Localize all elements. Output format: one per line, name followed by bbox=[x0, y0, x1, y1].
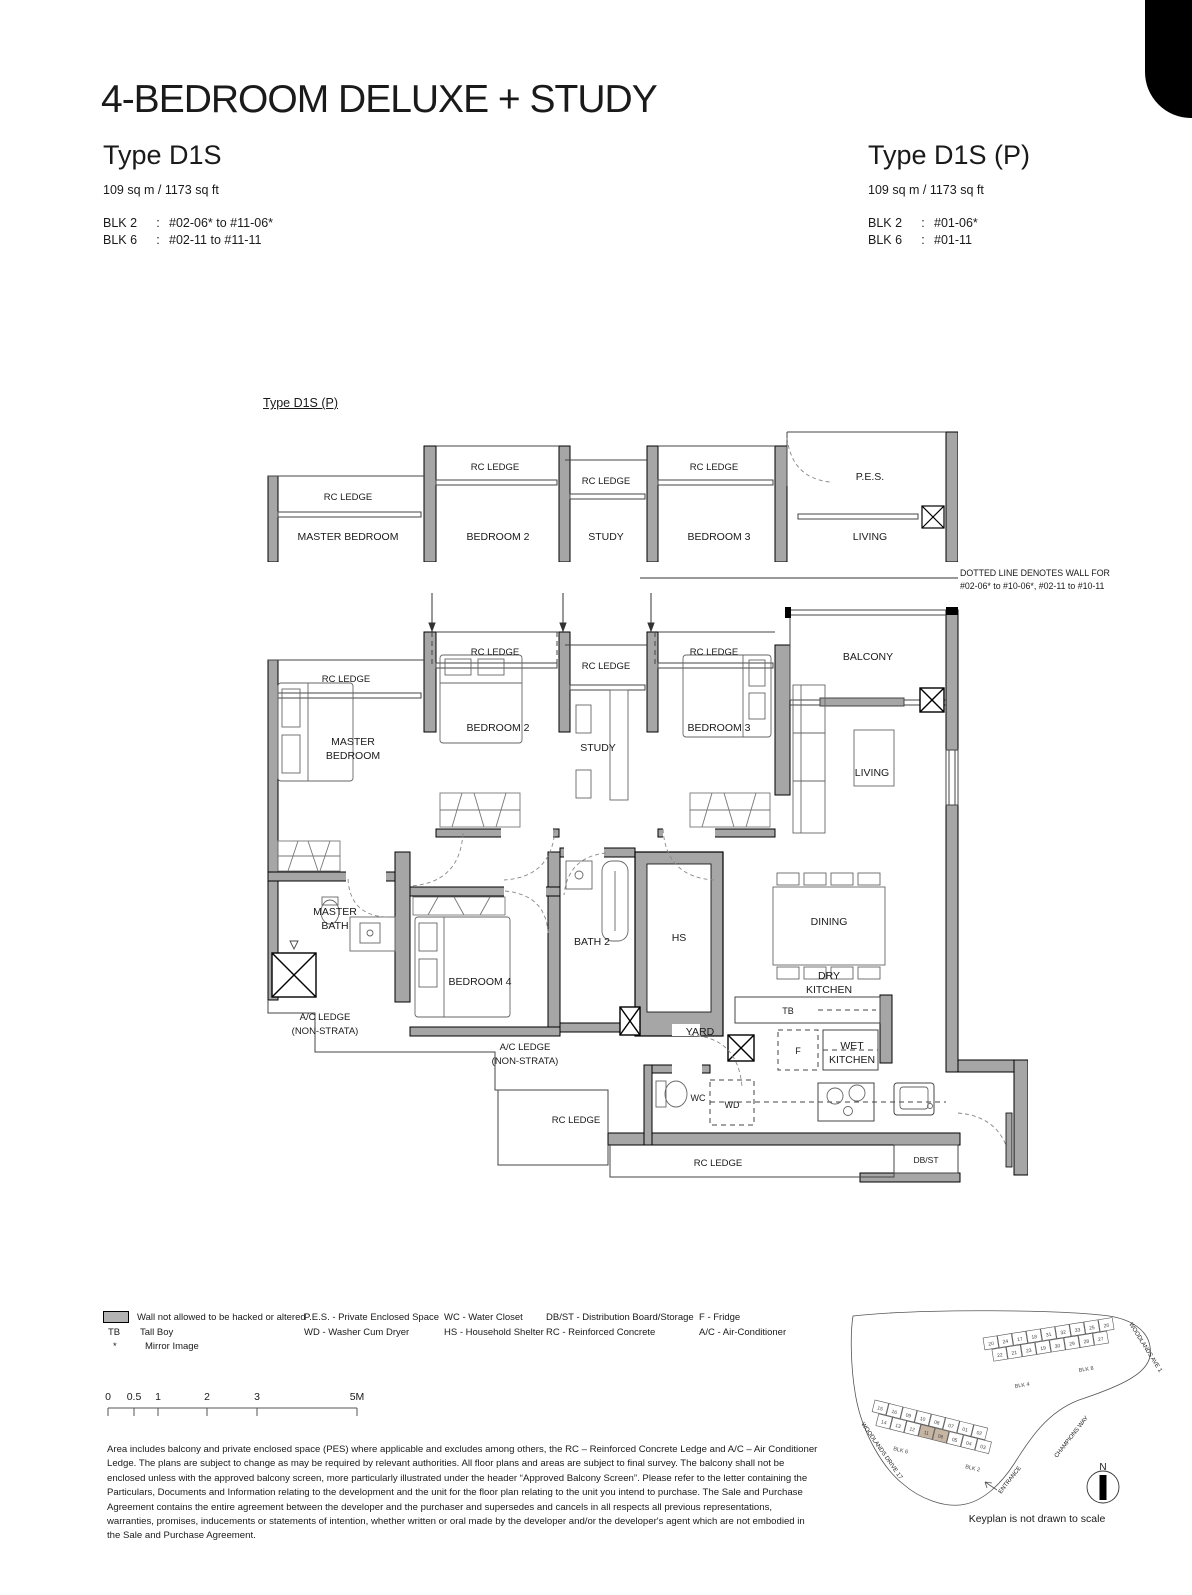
ac-ledge-label: (NON-STRATA) bbox=[492, 1056, 559, 1067]
legend-text: WD - Washer Cum Dryer bbox=[304, 1326, 439, 1341]
floorplan-page: 4-BEDROOM DELUXE + STUDY Type D1S 109 sq… bbox=[0, 0, 1192, 1595]
rc-ledge-label: RC LEDGE bbox=[694, 1158, 743, 1169]
disclaimer-text: Area includes balcony and private enclos… bbox=[107, 1443, 819, 1544]
master-bedroom-label: BEDROOM bbox=[326, 750, 380, 762]
legend-text: Wall not allowed to be hacked or altered bbox=[137, 1312, 306, 1323]
legend-wall-row: Wall not allowed to be hacked or altered bbox=[103, 1311, 306, 1326]
bedroom2-label: BEDROOM 2 bbox=[466, 531, 529, 543]
wet-kitchen-label: WET bbox=[840, 1040, 864, 1052]
keyplan-block-label: BLK 4 bbox=[1014, 1382, 1030, 1390]
hob-icon bbox=[827, 1085, 865, 1116]
keyplan-unit-number: 23 bbox=[1026, 1348, 1033, 1355]
scale-tick-label: 1 bbox=[155, 1391, 161, 1403]
unit-type-header-right: Type D1S (P) 109 sq m / 1173 sq ft BLK 2… bbox=[868, 140, 1030, 249]
scale-tick-label: 5M bbox=[350, 1391, 365, 1403]
keyplan-unit-number: 30 bbox=[1054, 1343, 1061, 1350]
keyplan-unit-number: 26 bbox=[1103, 1323, 1110, 1330]
hs-label: HS bbox=[672, 932, 687, 944]
rc-ledge-label: RC LEDGE bbox=[324, 492, 373, 503]
page-corner-tab bbox=[1145, 0, 1192, 118]
scale-bar: 0 0.5 1 2 3 5M bbox=[103, 1388, 373, 1420]
keyplan-unit-number: 31 bbox=[1046, 1332, 1053, 1339]
living-label: LIVING bbox=[853, 531, 887, 543]
legend-text: Tall Boy bbox=[140, 1327, 173, 1338]
dining-label: DINING bbox=[811, 916, 848, 928]
entrance-arrow-icon bbox=[985, 1482, 997, 1490]
legend-text: WC - Water Closet bbox=[444, 1311, 544, 1326]
block-label: BLK 2 bbox=[868, 215, 912, 232]
dry-kitchen-label: KITCHEN bbox=[806, 984, 852, 996]
block-units-line: BLK 6 : #01-11 bbox=[868, 232, 1030, 249]
bedroom3-label: BEDROOM 3 bbox=[687, 531, 750, 543]
north-arrow-icon: N bbox=[1087, 1462, 1119, 1503]
bedroom4-label: BEDROOM 4 bbox=[448, 976, 511, 988]
bedroom3-label: BEDROOM 3 bbox=[687, 722, 750, 734]
dry-kitchen-label: DRY bbox=[818, 970, 840, 982]
rc-ledge-label: RC LEDGE bbox=[690, 647, 739, 658]
yard-label: YARD bbox=[686, 1026, 715, 1038]
household-shelter-walls bbox=[635, 852, 723, 1036]
legend-text: DB/ST - Distribution Board/Storage bbox=[546, 1311, 694, 1326]
block-units: #01-06* bbox=[934, 215, 978, 232]
rc-ledge-label: RC LEDGE bbox=[322, 674, 371, 685]
unit-type-name: Type D1S (P) bbox=[868, 140, 1030, 171]
wardrobe-icon bbox=[440, 793, 520, 827]
keyplan-unit-number: 27 bbox=[1098, 1336, 1105, 1343]
wardrobe-icon bbox=[278, 841, 340, 871]
legend-text: F - Fridge bbox=[699, 1311, 786, 1326]
colon: : bbox=[912, 215, 934, 232]
wc-label: WC bbox=[691, 1093, 706, 1103]
rc-ledge-label: RC LEDGE bbox=[582, 661, 631, 672]
main-floor-plan: RC LEDGE RC LEDGE RC LEDGE RC LEDGE BALC… bbox=[258, 565, 1028, 1183]
rc-ledge-label: RC LEDGE bbox=[552, 1115, 601, 1126]
rc-ledge-label: RC LEDGE bbox=[471, 647, 520, 658]
colon: : bbox=[147, 215, 169, 232]
keyplan: 2024171831323325262221231930292827151609… bbox=[833, 1272, 1192, 1534]
keyplan-caption: Keyplan is not drawn to scale bbox=[969, 1513, 1106, 1525]
ac-ledge-box-icon bbox=[922, 506, 944, 528]
partial-plan-label: Type D1S (P) bbox=[263, 396, 338, 410]
block-units-line: BLK 6 : #02-11 to #11-11 bbox=[103, 232, 273, 249]
legend-text: RC - Reinforced Concrete bbox=[546, 1326, 694, 1341]
unit-type-name: Type D1S bbox=[103, 140, 273, 171]
living-label: LIVING bbox=[855, 767, 889, 779]
unit-type-header-left: Type D1S 109 sq m / 1173 sq ft BLK 2 : #… bbox=[103, 140, 273, 249]
keyplan-unit-number: 33 bbox=[1074, 1327, 1081, 1334]
keyplan-unit-number: 19 bbox=[1040, 1345, 1047, 1352]
wall-end-caps bbox=[785, 607, 958, 618]
tb-label: TB bbox=[782, 1006, 794, 1016]
unit-area: 109 sq m / 1173 sq ft bbox=[868, 183, 1030, 197]
ac-ledge-label: A/C LEDGE bbox=[300, 1012, 351, 1023]
keyplan-unit-number: 28 bbox=[1083, 1339, 1090, 1346]
scale-tick-label: 0 bbox=[105, 1391, 111, 1403]
wardrobe-icon bbox=[690, 793, 770, 827]
ledges-and-windows bbox=[268, 610, 958, 1177]
balcony-label: BALCONY bbox=[843, 651, 893, 663]
wd-label: WD bbox=[725, 1100, 740, 1110]
keyplan-block-label: BLK 6 bbox=[893, 1446, 909, 1455]
colon: : bbox=[147, 232, 169, 249]
legend-tb-row: TBTall Boy bbox=[103, 1326, 306, 1341]
block-units: #02-11 to #11-11 bbox=[169, 232, 261, 249]
rc-ledge-label: RC LEDGE bbox=[471, 462, 520, 473]
bath2-label: BATH 2 bbox=[574, 936, 610, 948]
entrance-door-leaf bbox=[1006, 1113, 1012, 1167]
sofa-icon bbox=[793, 685, 825, 833]
keyplan-block-label: BLK 8 bbox=[1078, 1366, 1094, 1374]
toilet-icon bbox=[656, 1081, 687, 1107]
block-label: BLK 6 bbox=[868, 232, 912, 249]
keyplan-block-label: BLK 2 bbox=[965, 1464, 981, 1473]
sink-icon bbox=[900, 1087, 933, 1109]
legend-symbol: TB bbox=[103, 1326, 132, 1341]
unit-area: 109 sq m / 1173 sq ft bbox=[103, 183, 273, 197]
master-bath-label: MASTER bbox=[313, 906, 357, 918]
scale-tick-label: 3 bbox=[254, 1391, 260, 1403]
fridge-label: F bbox=[795, 1046, 801, 1056]
keyplan-block-cluster: 2024171831323325262221231930292827 bbox=[983, 1318, 1116, 1363]
wardrobe-icon bbox=[413, 897, 505, 915]
bedroom2-label: BEDROOM 2 bbox=[466, 722, 529, 734]
study-label: STUDY bbox=[580, 742, 616, 754]
keyplan-unit-number: 25 bbox=[1089, 1325, 1096, 1332]
bed-icon bbox=[415, 917, 510, 1017]
keyplan-unit-number: 21 bbox=[1011, 1350, 1018, 1357]
legend-text: HS - Household Shelter bbox=[444, 1326, 544, 1341]
block-units: #02-06* to #11-06* bbox=[169, 215, 273, 232]
page-title: 4-BEDROOM DELUXE + STUDY bbox=[101, 78, 657, 122]
scale-tick-label: 0.5 bbox=[127, 1391, 142, 1403]
legend-text: A/C - Air-Conditioner bbox=[699, 1326, 786, 1341]
scale-tick-label: 2 bbox=[204, 1391, 210, 1403]
colon: : bbox=[912, 232, 934, 249]
legend-text: P.E.S. - Private Enclosed Space bbox=[304, 1311, 439, 1326]
keyplan-buildings: 2024171831323325262221231930292827151609… bbox=[869, 1318, 1116, 1474]
rc-ledge-label: RC LEDGE bbox=[690, 462, 739, 473]
master-bath-label: BATH bbox=[321, 920, 348, 932]
block-label: BLK 2 bbox=[103, 215, 147, 232]
wet-kitchen-label: KITCHEN bbox=[829, 1054, 875, 1066]
wall-swatch-icon bbox=[103, 1311, 129, 1323]
block-units-line: BLK 2 : #02-06* to #11-06* bbox=[103, 215, 273, 232]
keyplan-block-cluster: 15160910080701021413121106050403 bbox=[869, 1400, 994, 1454]
block-units: #01-11 bbox=[934, 232, 972, 249]
master-bedroom-label: MASTER BEDROOM bbox=[298, 531, 399, 543]
furniture bbox=[278, 655, 933, 1116]
street-label: CHAMPIONS WAY bbox=[1054, 1415, 1090, 1459]
rc-ledge-label: RC LEDGE bbox=[582, 476, 631, 487]
pes-door-icon bbox=[787, 438, 830, 482]
legend-text: Mirror Image bbox=[145, 1341, 199, 1352]
north-label: N bbox=[1099, 1462, 1106, 1473]
master-bedroom-label: MASTER bbox=[331, 736, 375, 748]
keyplan-unit-number: 17 bbox=[1017, 1336, 1024, 1343]
bathroom-fixtures-icon bbox=[566, 861, 628, 941]
partial-floor-plan: RC LEDGE RC LEDGE RC LEDGE RC LEDGE P.E.… bbox=[258, 428, 958, 562]
note-arrows bbox=[429, 578, 958, 631]
dbst-label: DB/ST bbox=[913, 1155, 938, 1165]
keyplan-unit-number: 18 bbox=[1031, 1334, 1038, 1341]
keyplan-unit-number: 24 bbox=[1002, 1339, 1009, 1346]
legend-mirror-row: *Mirror Image bbox=[103, 1340, 306, 1355]
ac-ledge-label: (NON-STRATA) bbox=[292, 1026, 359, 1037]
legend-symbol: * bbox=[103, 1340, 137, 1355]
block-label: BLK 6 bbox=[103, 232, 147, 249]
study-label: STUDY bbox=[588, 531, 624, 543]
ac-ledge-label: A/C LEDGE bbox=[500, 1042, 551, 1053]
block-units-line: BLK 2 : #01-06* bbox=[868, 215, 1030, 232]
pes-label: P.E.S. bbox=[856, 471, 884, 483]
